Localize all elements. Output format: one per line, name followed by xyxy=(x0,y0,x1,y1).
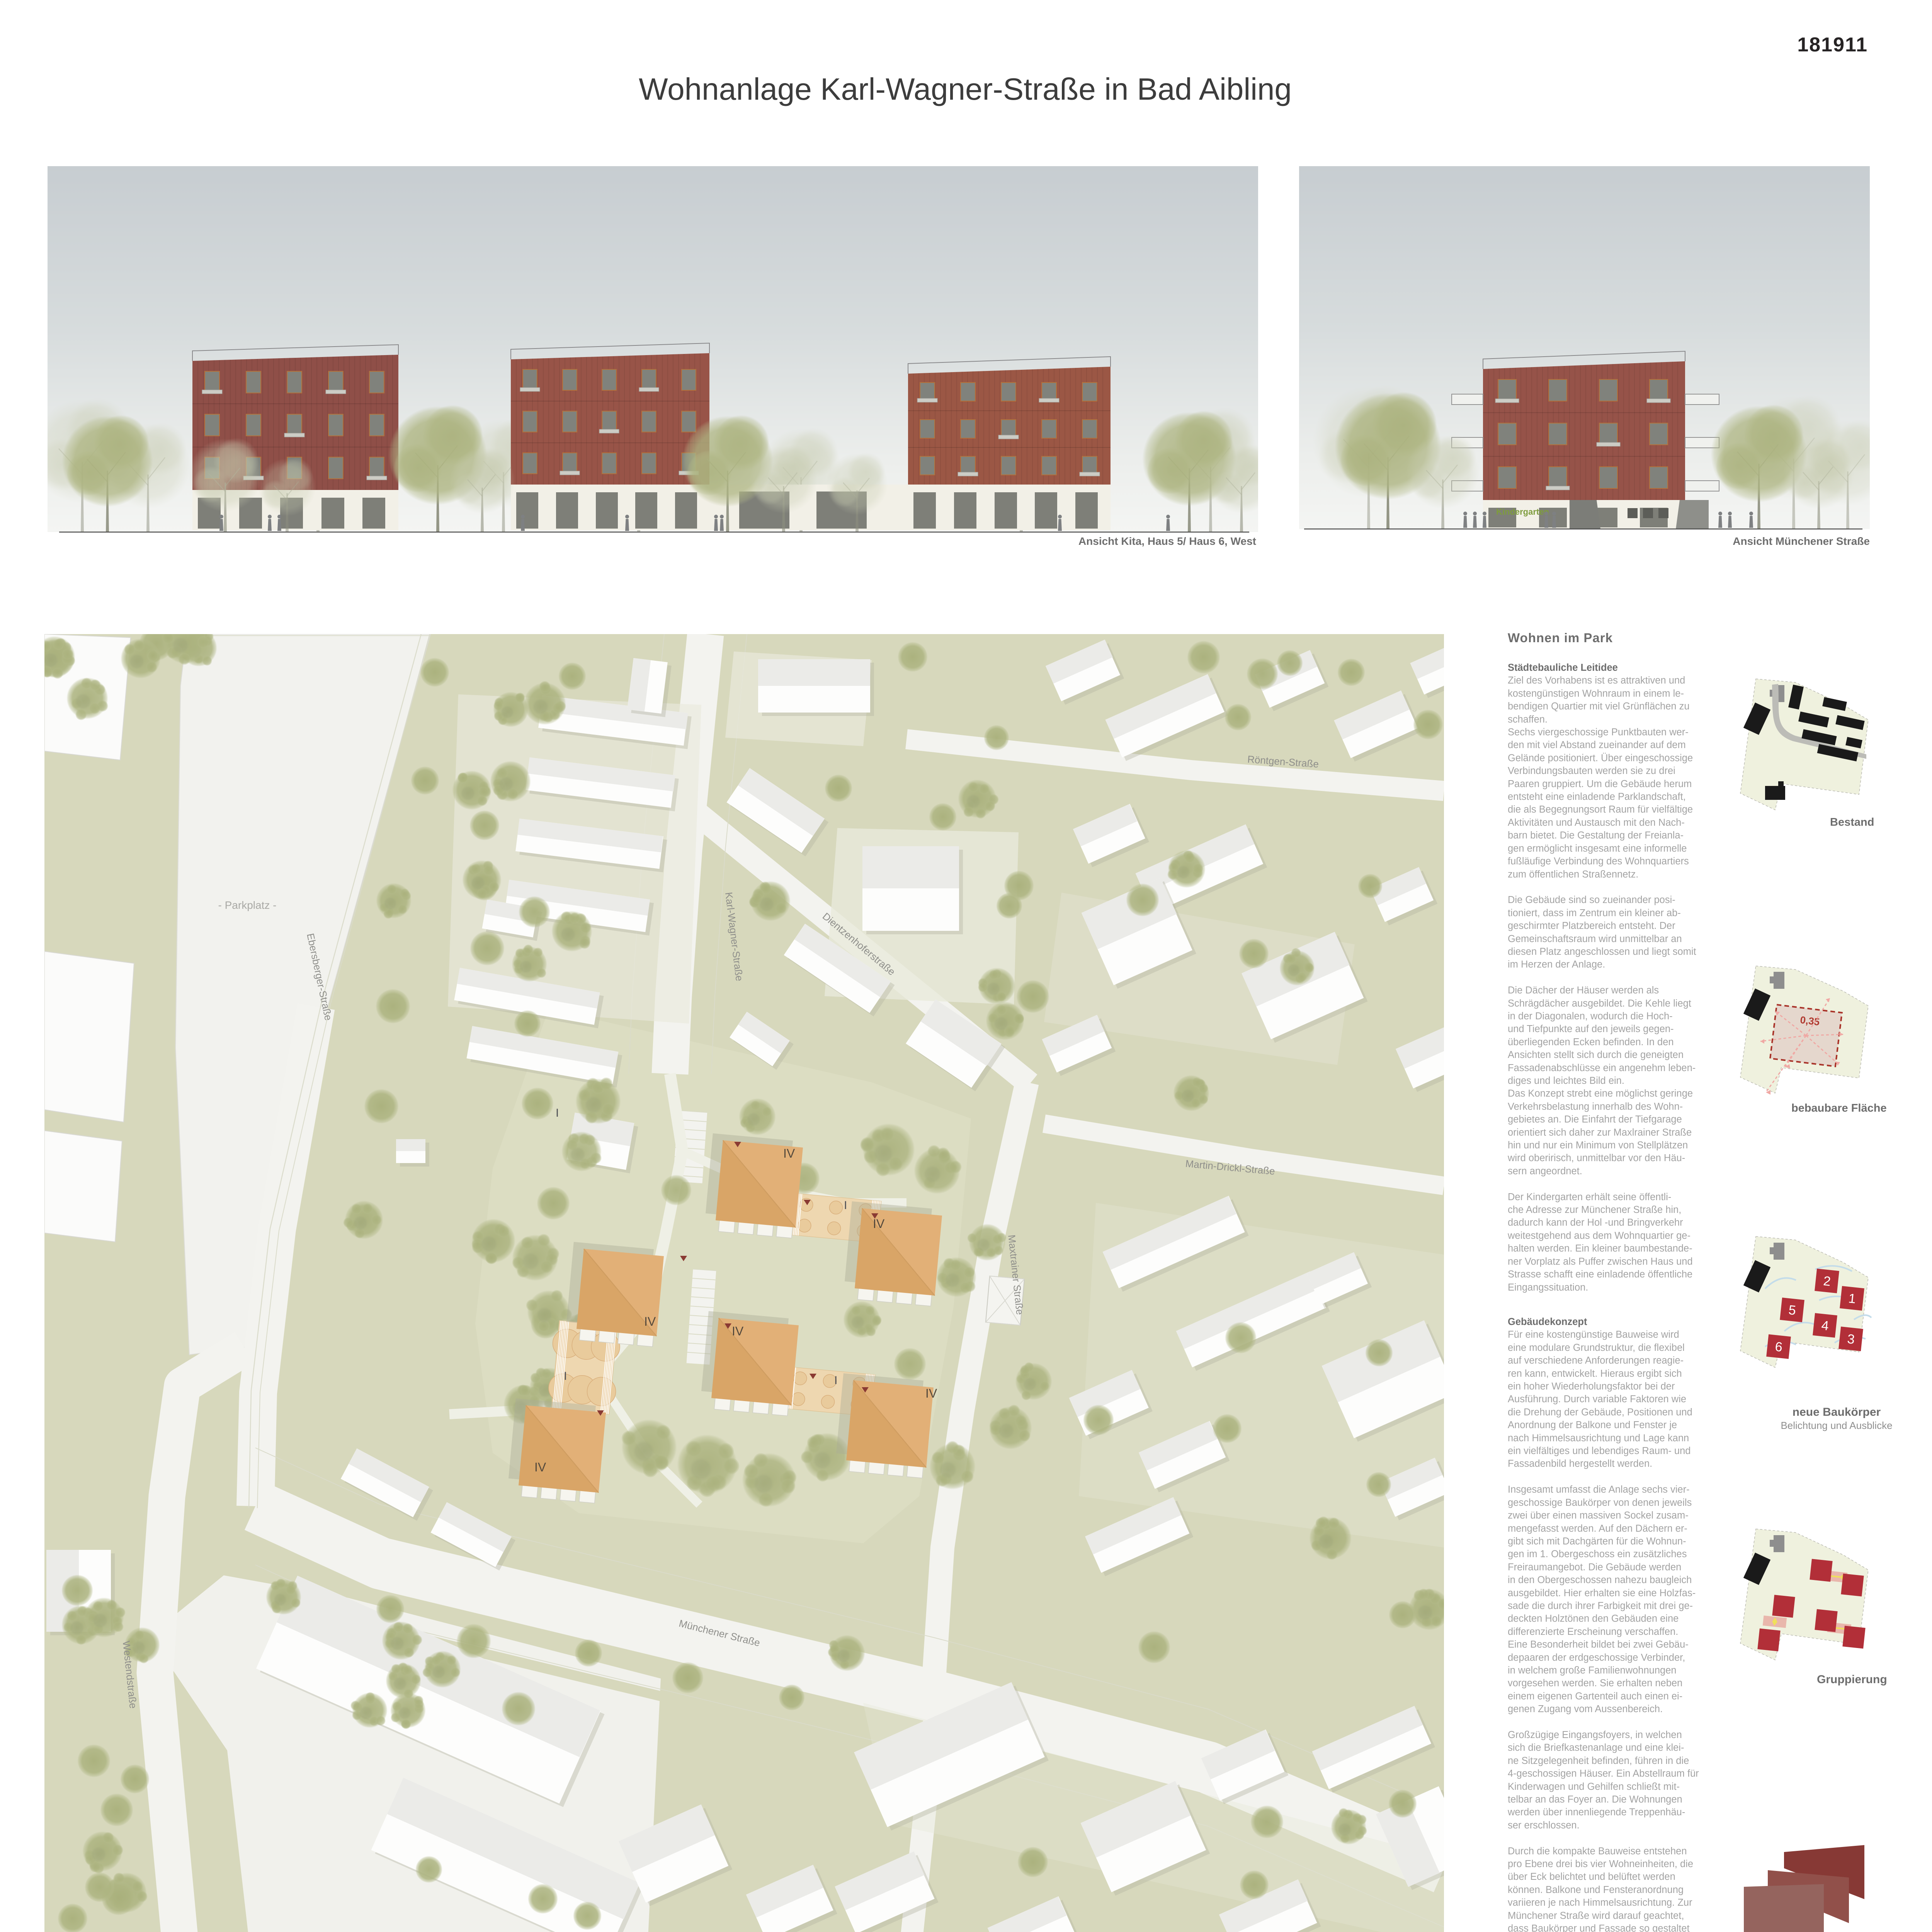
svg-text:IV: IV xyxy=(925,1386,937,1400)
svg-text:I: I xyxy=(564,1370,567,1383)
svg-text:5: 5 xyxy=(1788,1303,1797,1318)
svg-text:2: 2 xyxy=(1823,1274,1832,1289)
svg-text:IV: IV xyxy=(783,1146,795,1160)
svg-text:IV: IV xyxy=(732,1324,744,1338)
svg-text:I: I xyxy=(556,1107,559,1119)
svg-text:3: 3 xyxy=(1847,1332,1855,1347)
svg-text:Kindergarten: Kindergarten xyxy=(1496,507,1549,517)
svg-text:I: I xyxy=(844,1199,847,1212)
svg-text:0,35: 0,35 xyxy=(1799,1014,1820,1028)
svg-text:6: 6 xyxy=(1774,1339,1783,1355)
svg-text:IV: IV xyxy=(644,1315,656,1328)
svg-text:IV: IV xyxy=(534,1460,546,1474)
svg-text:IV: IV xyxy=(873,1217,885,1231)
svg-text:4: 4 xyxy=(1821,1318,1830,1333)
svg-text:I: I xyxy=(834,1374,837,1387)
svg-text:- Parkplatz -: - Parkplatz - xyxy=(218,899,277,911)
svg-text:1: 1 xyxy=(1848,1291,1857,1306)
